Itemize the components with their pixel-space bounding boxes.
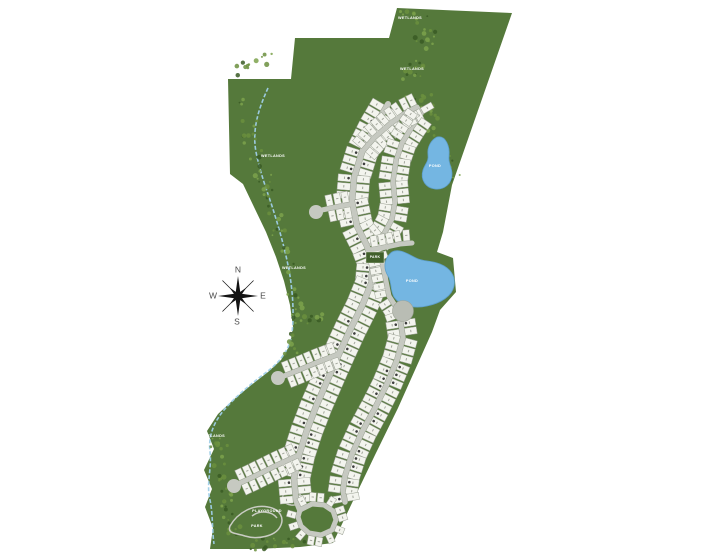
area-label: WETLANDS: [400, 67, 424, 71]
area-label: WETLANDS: [201, 434, 225, 438]
tree-icon: [250, 543, 255, 548]
tree-icon: [240, 103, 243, 106]
tree-icon: [308, 318, 312, 322]
pond-label: POND: [406, 279, 418, 283]
tree-icon: [429, 29, 432, 32]
tree-icon: [282, 540, 286, 544]
tree-icon: [229, 492, 231, 494]
lot: [379, 182, 392, 190]
tree-icon: [413, 35, 418, 40]
lot: [386, 321, 399, 330]
tree-icon: [270, 174, 272, 176]
tree-icon: [212, 438, 214, 440]
tree-icon: [262, 547, 266, 551]
tree-icon: [423, 28, 426, 31]
tree-icon: [286, 270, 291, 275]
tree-icon: [281, 230, 283, 232]
tree-icon: [434, 114, 437, 117]
tree-icon: [415, 21, 419, 25]
tree-icon: [255, 119, 258, 122]
tree-icon: [220, 490, 223, 493]
lot: [379, 172, 392, 180]
tree-icon: [424, 46, 429, 51]
tree-icon: [230, 499, 233, 502]
tree-icon: [293, 347, 296, 350]
tree-icon: [291, 333, 295, 337]
tree-icon: [433, 134, 436, 137]
tree-icon: [220, 455, 224, 459]
lot: [278, 479, 292, 487]
area-label: WETLANDS: [282, 266, 306, 270]
tree-icon: [429, 112, 432, 115]
lot: [346, 478, 359, 487]
tree-icon: [459, 174, 461, 176]
tree-icon: [286, 542, 288, 544]
lot: [297, 477, 311, 485]
lot: [338, 174, 352, 182]
lot: [381, 156, 394, 164]
tree-icon: [209, 445, 212, 448]
tree-icon: [255, 539, 258, 542]
tree-icon: [283, 228, 287, 232]
compass-letter-N: N: [235, 264, 241, 274]
tree-icon: [416, 40, 418, 42]
tree-icon: [266, 540, 269, 543]
tree-icon: [419, 75, 421, 77]
tree-icon: [270, 53, 272, 55]
tree-icon: [285, 249, 290, 254]
tree-icon: [226, 444, 229, 447]
area-label: WETLANDS: [261, 154, 285, 158]
park-square-label: PARK: [370, 255, 381, 259]
tree-icon: [287, 538, 290, 541]
area-label: PARK: [251, 524, 263, 528]
area-label: PARK: [276, 298, 288, 302]
tree-icon: [246, 133, 251, 138]
lot: [356, 184, 370, 192]
tree-icon: [228, 521, 231, 524]
lot: [398, 158, 411, 166]
tree-icon: [272, 234, 274, 236]
tree-icon: [263, 53, 267, 57]
tree-icon: [420, 39, 424, 43]
tree-icon: [246, 64, 249, 67]
lot: [356, 263, 370, 271]
tree-icon: [405, 9, 410, 14]
tree-icon: [433, 30, 437, 34]
lot: [397, 196, 410, 204]
lot: [380, 164, 393, 172]
tree-icon: [276, 228, 279, 231]
tree-icon: [267, 205, 270, 208]
tree-icon: [293, 293, 297, 297]
tree-icon: [293, 287, 297, 291]
tree-icon: [297, 297, 299, 299]
tree-icon: [224, 508, 228, 512]
tree-icon: [258, 170, 261, 173]
tree-icon: [221, 504, 224, 507]
tree-icon: [401, 77, 405, 81]
tree-icon: [295, 312, 300, 317]
tree-icon: [235, 64, 240, 69]
tree-icon: [241, 60, 245, 64]
tree-icon: [406, 73, 409, 76]
tree-icon: [433, 35, 435, 37]
tree-icon: [234, 528, 236, 530]
lot: [337, 182, 351, 190]
tree-icon: [217, 474, 221, 478]
tree-icon: [267, 195, 270, 198]
tree-icon: [286, 293, 289, 296]
tree-icon: [271, 189, 274, 192]
tree-icon: [310, 315, 313, 318]
tree-icon: [254, 58, 259, 63]
tree-icon: [212, 463, 217, 468]
tree-icon: [274, 539, 276, 541]
lot: [396, 180, 409, 188]
tree-icon: [418, 62, 421, 65]
tree-icon: [294, 322, 296, 324]
tree-icon: [303, 540, 307, 544]
tree-icon: [273, 544, 277, 548]
tree-icon: [295, 308, 297, 310]
tree-icon: [283, 352, 287, 356]
tree-icon: [253, 173, 258, 178]
compass-letter-E: E: [260, 290, 266, 300]
tree-icon: [257, 164, 261, 168]
tree-icon: [252, 133, 255, 136]
tree-icon: [263, 193, 266, 196]
tree-icon: [257, 178, 259, 180]
tree-icon: [222, 499, 226, 503]
lot: [379, 190, 392, 198]
tree-icon: [243, 141, 246, 144]
tree-icon: [415, 60, 417, 62]
tree-icon: [225, 505, 227, 507]
site-plan-map: PONDPONDPARKWETLANDSWETLANDSWETLANDSWETL…: [0, 0, 720, 556]
tree-icon: [227, 519, 229, 521]
tree-icon: [452, 177, 454, 179]
lot: [396, 188, 409, 196]
tree-icon: [290, 544, 294, 548]
lot: [307, 535, 315, 545]
tree-icon: [276, 217, 281, 222]
tree-icon: [435, 116, 440, 121]
tree-icon: [289, 342, 294, 347]
tree-icon: [292, 263, 294, 265]
lot: [329, 476, 342, 485]
tree-icon: [307, 322, 309, 324]
tree-icon: [425, 37, 430, 42]
tree-icon: [272, 229, 274, 231]
tree-icon: [300, 319, 303, 322]
tree-icon: [261, 56, 263, 58]
lot: [397, 166, 410, 174]
tree-icon: [236, 73, 240, 77]
area-label: PLAYGROUND: [252, 509, 282, 513]
tree-icon: [431, 42, 434, 45]
tree-icon: [408, 63, 411, 66]
lot: [317, 493, 324, 503]
lot: [298, 486, 312, 494]
lot: [279, 487, 293, 495]
lot: [280, 496, 294, 504]
tree-icon: [399, 10, 402, 13]
tree-icon: [250, 548, 252, 550]
tree-icon: [273, 538, 275, 540]
tree-icon: [421, 95, 426, 100]
tree-icon: [267, 211, 271, 215]
park-square: PARK: [366, 252, 384, 263]
tree-icon: [258, 181, 260, 183]
tree-icon: [291, 315, 295, 319]
page: PONDPONDPARKWETLANDSWETLANDSWETLANDSWETL…: [0, 0, 720, 556]
lot: [357, 175, 371, 183]
tree-icon: [280, 249, 283, 252]
tree-icon: [292, 538, 294, 540]
tree-icon: [239, 102, 241, 104]
tree-icon: [413, 74, 416, 77]
tree-icon: [215, 442, 220, 447]
area-label: WETLANDS: [398, 16, 422, 20]
tree-icon: [241, 119, 245, 123]
tree-icon: [279, 213, 283, 217]
tree-icon: [254, 549, 257, 552]
tree-icon: [231, 513, 234, 516]
tree-icon: [254, 138, 257, 141]
tree-icon: [302, 314, 307, 319]
compass-rose: NESW: [209, 264, 266, 326]
lot: [309, 492, 316, 502]
compass-letter-W: W: [209, 290, 217, 300]
pond-label: POND: [429, 164, 441, 168]
lot: [328, 484, 341, 493]
tree-icon: [298, 301, 303, 306]
tree-icon: [430, 93, 434, 97]
tree-icon: [219, 447, 222, 450]
tree-icon: [320, 312, 324, 316]
lot: [403, 230, 410, 242]
compass-letter-S: S: [234, 316, 240, 326]
tree-icon: [241, 98, 245, 102]
lot: [315, 537, 323, 547]
tree-icon: [238, 524, 243, 529]
tree-icon: [431, 126, 435, 130]
tree-icon: [252, 124, 255, 127]
tree-icon: [242, 133, 247, 138]
tree-icon: [260, 149, 263, 152]
tree-icon: [222, 516, 225, 519]
amenity-circle: [393, 301, 414, 322]
tree-icon: [451, 160, 453, 162]
tree-icon: [296, 352, 299, 355]
tree-icon: [264, 62, 269, 67]
tree-icon: [262, 187, 266, 191]
tree-icon: [249, 158, 252, 161]
tree-icon: [223, 463, 226, 466]
tree-icon: [426, 15, 428, 17]
tree-icon: [269, 181, 271, 183]
tree-icon: [315, 315, 320, 320]
lot: [404, 327, 417, 336]
tree-icon: [422, 31, 427, 36]
